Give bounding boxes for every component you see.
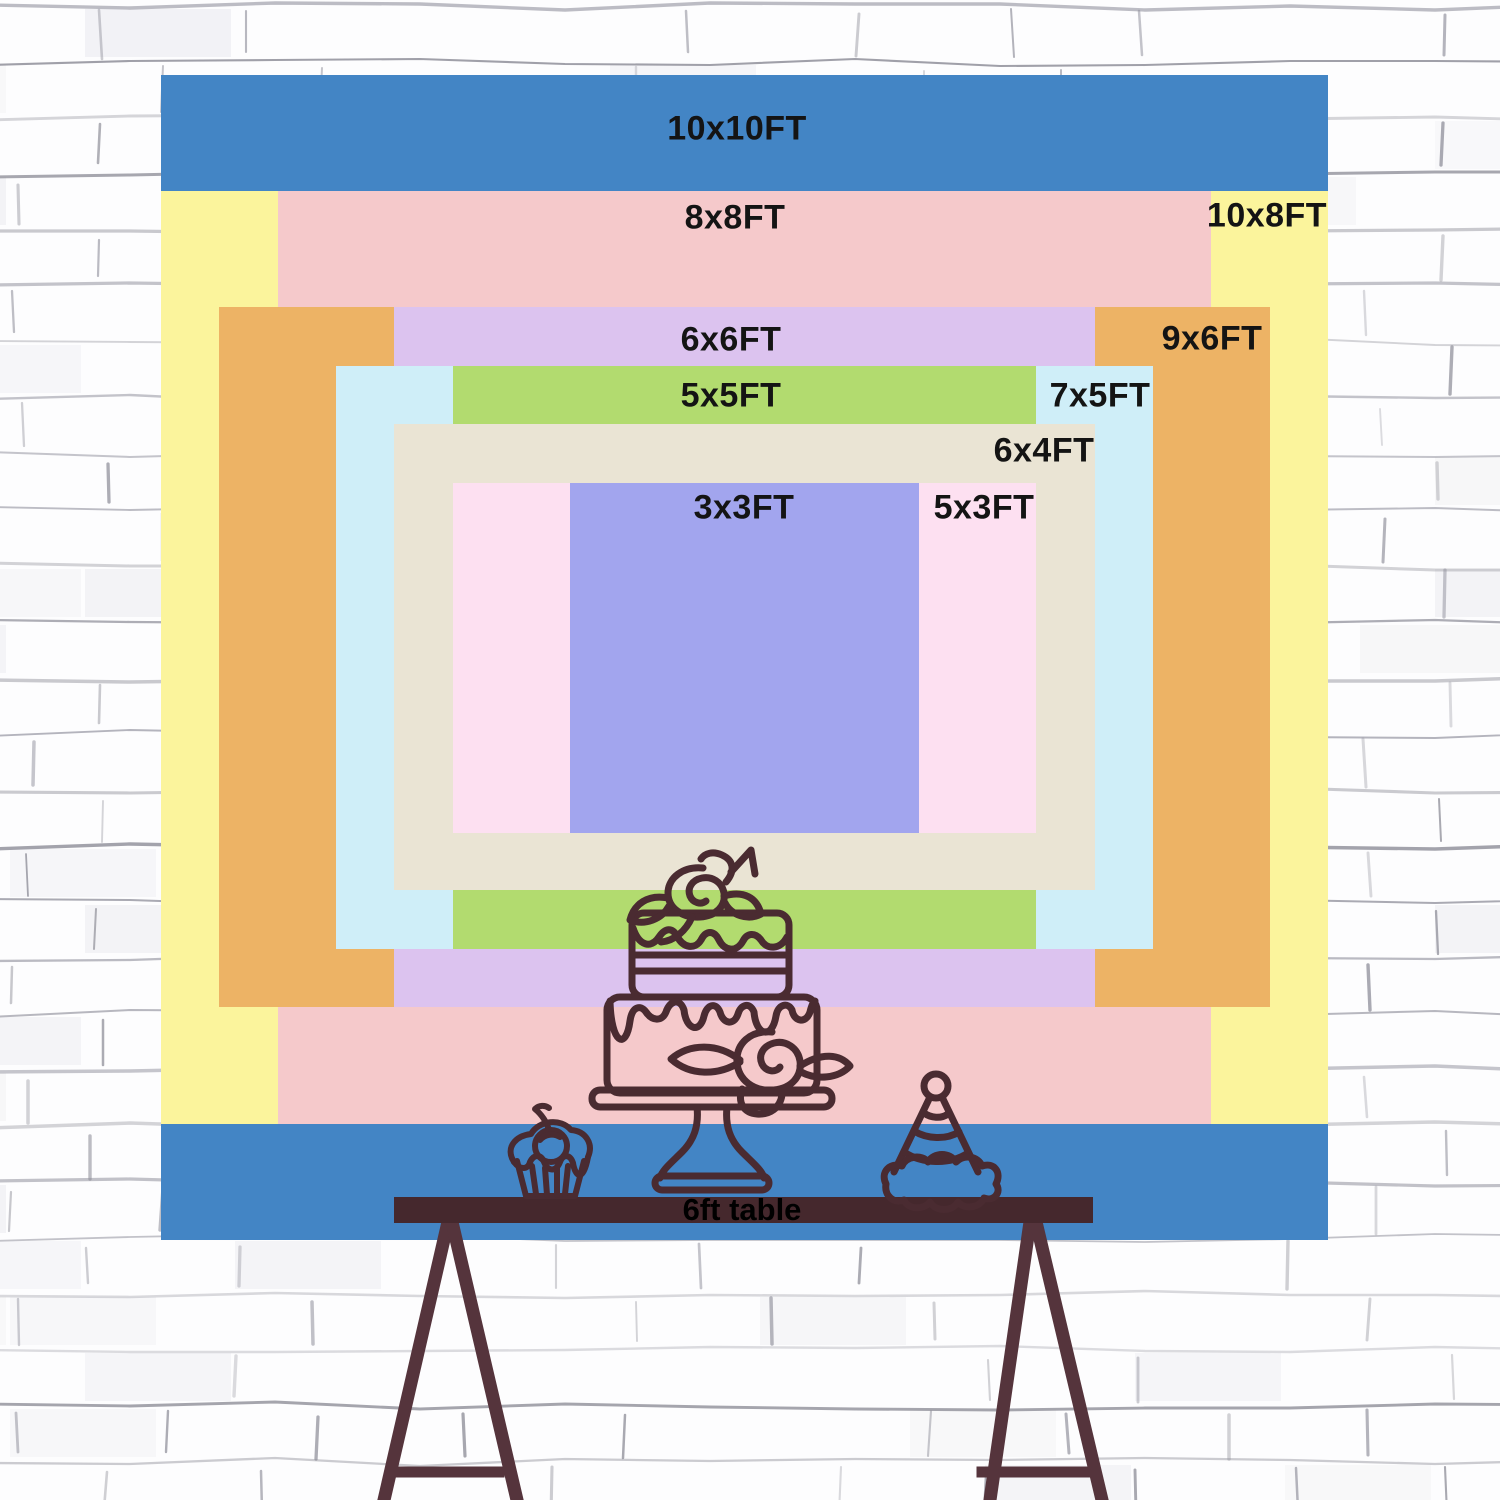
table-right-trestle-right-leg <box>1036 1222 1102 1500</box>
line-art-group <box>511 850 998 1210</box>
size-label-8x8ft: 8x8FT <box>685 199 786 238</box>
size-label-9x6ft: 9x6FT <box>1162 320 1263 359</box>
size-label-10x8ft: 10x8FT <box>1207 197 1327 236</box>
size-label-6x6ft: 6x6FT <box>681 321 782 360</box>
size-label-7x5ft: 7x5FT <box>1050 377 1151 416</box>
party-hat-stripe-2 <box>914 1131 959 1138</box>
two-tier-cake-illustration <box>592 850 850 1190</box>
table-left-trestle-left-leg <box>384 1222 448 1500</box>
cupcake-frosting-drips <box>514 1156 588 1175</box>
size-label-10x10ft: 10x10FT <box>667 110 807 149</box>
cupcake-cherry-shine <box>540 1135 560 1140</box>
table-legs <box>384 1222 1102 1500</box>
table-left-trestle-right-leg <box>452 1222 517 1500</box>
cake-stand-stem <box>660 1107 764 1178</box>
cupcake-illustration <box>511 1106 590 1196</box>
cake-side-right-leaf <box>800 1056 850 1077</box>
cake-top-rose-petal <box>731 850 755 874</box>
party-hat-illustration <box>884 1074 998 1210</box>
party-hat-stripe-1 <box>924 1113 948 1117</box>
size-label-5x5ft: 5x5FT <box>681 377 782 416</box>
size-label-6x4ft: 6x4FT <box>994 432 1095 471</box>
cake-side-rose-spiral <box>737 1032 800 1090</box>
cake-side-left-leaf <box>671 1047 740 1072</box>
cake-top-right-leaf <box>724 894 761 917</box>
cake-stand-base <box>655 1176 769 1190</box>
cake-top-tier-icing-drips <box>633 928 787 949</box>
party-hat-pompom <box>924 1074 948 1098</box>
size-label-3x3ft: 3x3FT <box>694 489 795 528</box>
table-right-trestle-left-leg <box>990 1222 1030 1500</box>
backdrop-size-chart: 10x10FT 10x8FT 8x8FT 9x6FT 6x6FT 7x5FT 5… <box>0 0 1500 1500</box>
size-label-5x3ft: 5x3FT <box>934 489 1035 528</box>
table-size-label: 6ft table <box>683 1192 802 1228</box>
cake-plate <box>592 1090 832 1107</box>
cake-bottom-tier-icing-drips <box>610 1001 815 1039</box>
